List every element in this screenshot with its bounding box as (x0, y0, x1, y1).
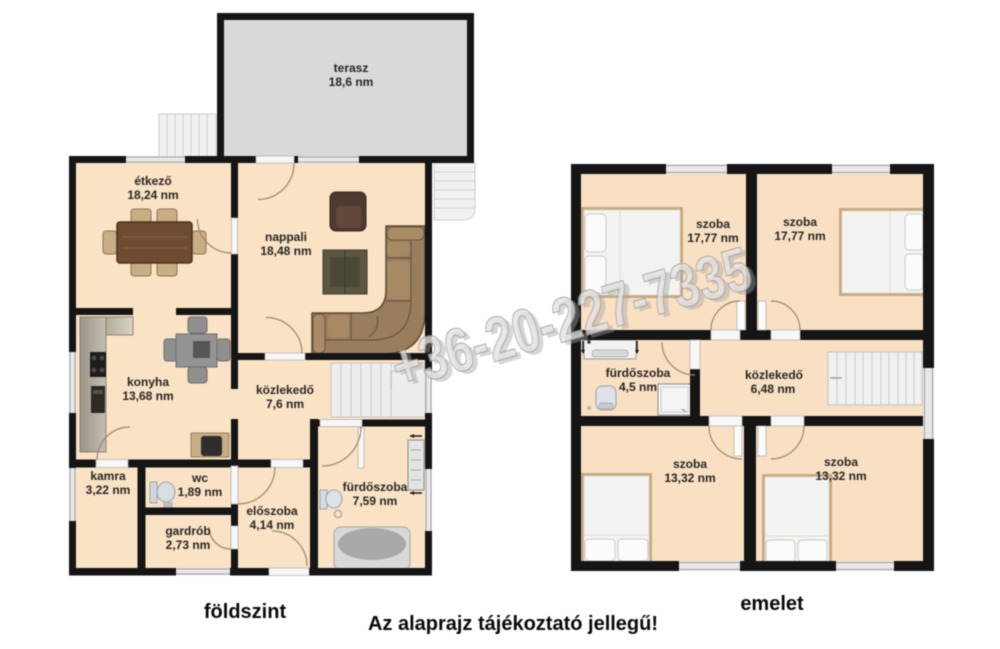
svg-text:előszoba: előszoba (246, 504, 298, 518)
svg-text:emelet: emelet (740, 593, 804, 615)
svg-text:18,6 nm: 18,6 nm (329, 75, 374, 89)
svg-text:terasz: terasz (334, 61, 369, 75)
svg-text:4,5 nm: 4,5 nm (619, 380, 657, 394)
svg-text:fürdőszoba: fürdőszoba (343, 480, 408, 494)
svg-text:fürdőszoba: fürdőszoba (606, 366, 671, 380)
svg-text:13,68 nm: 13,68 nm (122, 389, 173, 403)
svg-text:18,24 nm: 18,24 nm (127, 188, 178, 202)
svg-text:7,6 nm: 7,6 nm (266, 397, 304, 411)
svg-text:18,48 nm: 18,48 nm (260, 244, 311, 258)
svg-text:szoba: szoba (824, 455, 858, 469)
svg-text:7,59 nm: 7,59 nm (353, 494, 398, 508)
svg-text:gardrób: gardrób (165, 524, 210, 538)
svg-text:3,22 nm: 3,22 nm (86, 483, 131, 497)
svg-text:konyha: konyha (127, 375, 169, 389)
svg-text:6,48 nm: 6,48 nm (751, 382, 796, 396)
svg-text:1,89 nm: 1,89 nm (178, 485, 223, 499)
svg-text:étkező: étkező (134, 174, 171, 188)
svg-text:szoba: szoba (696, 217, 730, 231)
svg-text:17,77 nm: 17,77 nm (774, 229, 825, 243)
svg-text:közlekedő: közlekedő (256, 383, 314, 397)
svg-text:wc: wc (191, 471, 208, 485)
svg-text:4,14 nm: 4,14 nm (250, 518, 295, 532)
svg-text:földszint: földszint (204, 601, 287, 623)
svg-text:szoba: szoba (783, 215, 817, 229)
svg-text:13,32 nm: 13,32 nm (815, 469, 866, 483)
svg-text:13,32 nm: 13,32 nm (664, 471, 715, 485)
svg-text:Az alaprajz tájékoztató jelleg: Az alaprajz tájékoztató jellegű! (368, 613, 658, 635)
svg-text:közlekedő: közlekedő (745, 368, 803, 382)
svg-text:2,73 nm: 2,73 nm (166, 538, 211, 552)
svg-text:kamra: kamra (90, 469, 126, 483)
svg-text:szoba: szoba (673, 457, 707, 471)
svg-text:nappali: nappali (265, 230, 307, 244)
